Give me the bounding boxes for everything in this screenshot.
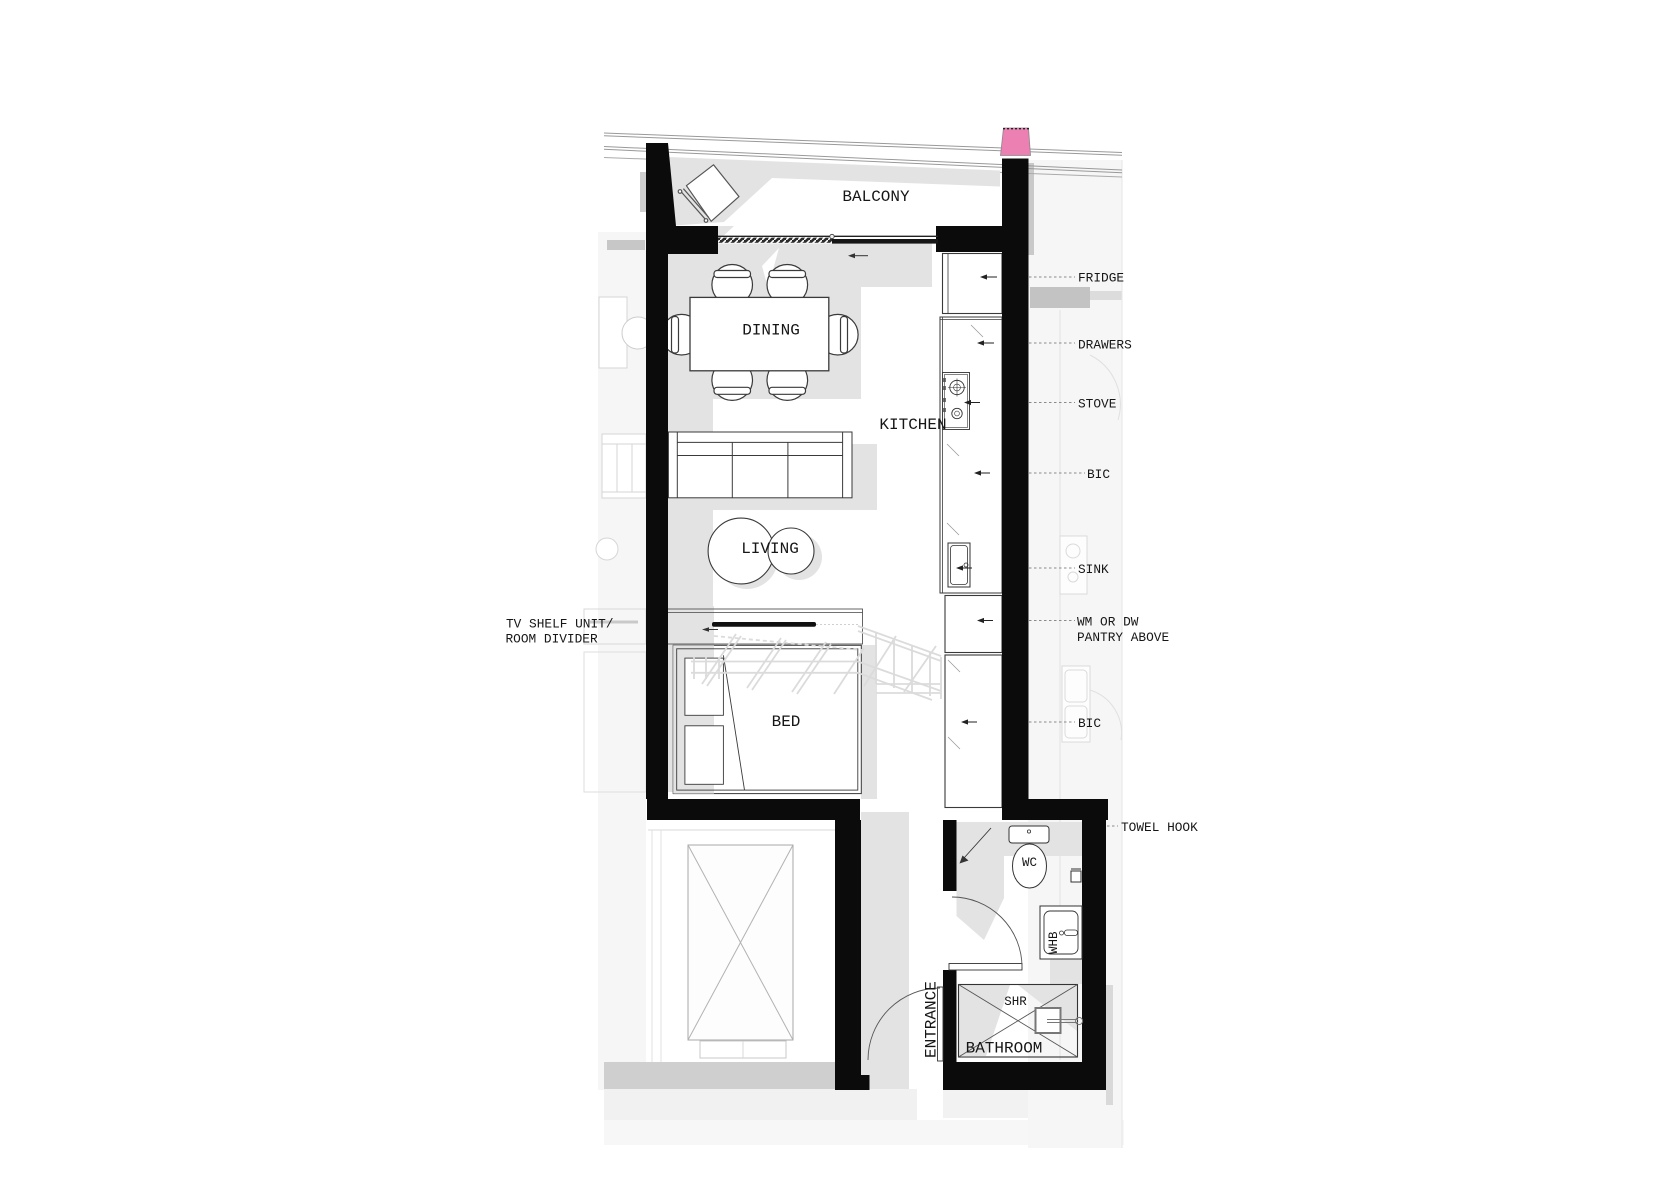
svg-text:WC: WC — [1022, 856, 1037, 870]
svg-text:TOWEL HOOK: TOWEL HOOK — [1121, 820, 1198, 835]
svg-text:PANTRY ABOVE: PANTRY ABOVE — [1077, 630, 1169, 645]
svg-text:FRIDGE: FRIDGE — [1078, 271, 1124, 286]
svg-text:ROOM DIVIDER: ROOM DIVIDER — [506, 632, 598, 647]
svg-text:ENTRANCE: ENTRANCE — [923, 981, 941, 1058]
svg-text:BED: BED — [772, 713, 801, 731]
svg-text:TV SHELF UNIT/: TV SHELF UNIT/ — [506, 617, 614, 632]
svg-text:BIC: BIC — [1078, 716, 1101, 731]
svg-text:STOVE: STOVE — [1078, 397, 1117, 412]
svg-text:WM OR DW: WM OR DW — [1077, 615, 1139, 630]
svg-text:SHR: SHR — [1004, 995, 1027, 1009]
svg-text:BIC: BIC — [1087, 467, 1110, 482]
svg-text:LIVING: LIVING — [741, 540, 799, 558]
svg-text:WHB: WHB — [1047, 931, 1061, 954]
svg-text:BATHROOM: BATHROOM — [966, 1040, 1043, 1058]
svg-text:DRAWERS: DRAWERS — [1078, 338, 1132, 353]
svg-text:SINK: SINK — [1078, 562, 1109, 577]
svg-text:KITCHEN: KITCHEN — [879, 416, 946, 434]
svg-text:BALCONY: BALCONY — [842, 188, 910, 206]
svg-text:DINING: DINING — [742, 322, 800, 340]
